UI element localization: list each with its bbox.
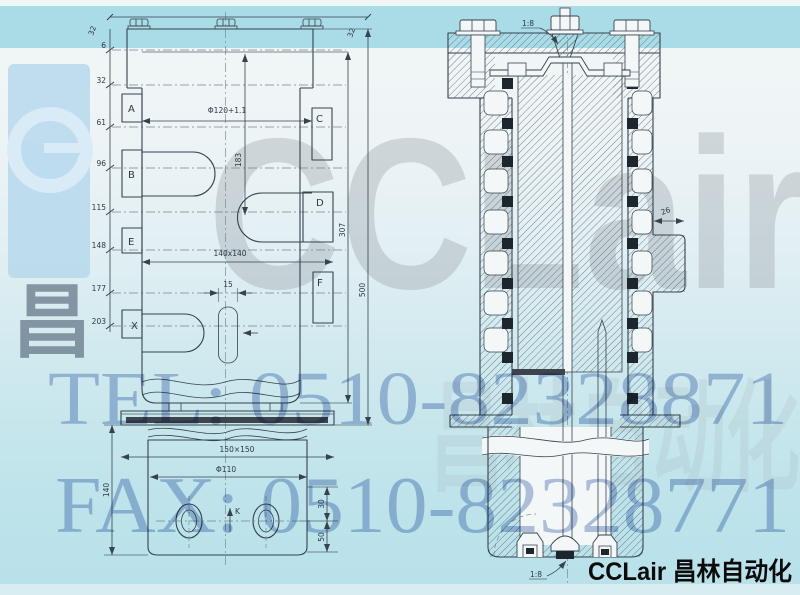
port-a-label: A xyxy=(128,104,135,115)
side-logo-watermark: 昌 xyxy=(8,64,92,367)
dim-307-label: 307 xyxy=(338,223,347,238)
fax-watermark: FAX: 0510-82328771 xyxy=(55,462,790,550)
port-f-label: F xyxy=(317,278,323,289)
dim-115: 115 xyxy=(92,203,107,212)
dim-bore-label: Φ120+1.1 xyxy=(208,106,247,115)
tel-watermark: TEL: 0510-82328871 xyxy=(48,357,788,441)
dim-183-label: 183 xyxy=(234,153,243,168)
dim-500-label: 500 xyxy=(358,283,367,298)
dim-6: 6 xyxy=(101,41,106,50)
dim-slot-label: 15 xyxy=(223,280,233,289)
taper-bottom-label: 1:8 xyxy=(530,570,542,579)
port-d-label: D xyxy=(316,198,324,209)
logo-fragment-cn: 昌 xyxy=(12,278,92,367)
footer-logo-text: CCLair 昌林自动化 xyxy=(588,558,792,586)
dim-177: 177 xyxy=(92,284,107,293)
dim-plate-label: 150×150 xyxy=(220,445,255,454)
product-drawing-image: 昌 CCLair 昌林自动化 xyxy=(0,0,800,595)
dim-32: 32 xyxy=(96,76,106,85)
port-x-label: X xyxy=(131,321,138,332)
top-white-strip xyxy=(0,0,800,6)
port-e-label: E xyxy=(128,237,134,248)
left-dim-chain: 6 32 61 96 115 148 177 203 xyxy=(92,29,114,332)
port-b-label: B xyxy=(128,170,135,181)
dim-203: 203 xyxy=(92,317,107,326)
port-c-label: C xyxy=(316,114,323,125)
dim-square-label: 140x140 xyxy=(213,249,246,258)
dim-61: 61 xyxy=(96,118,106,127)
dim-148: 148 xyxy=(92,241,107,250)
taper-top-label: 1:8 xyxy=(522,19,534,28)
top-cyan-band xyxy=(0,6,800,48)
dim-96: 96 xyxy=(96,159,106,168)
